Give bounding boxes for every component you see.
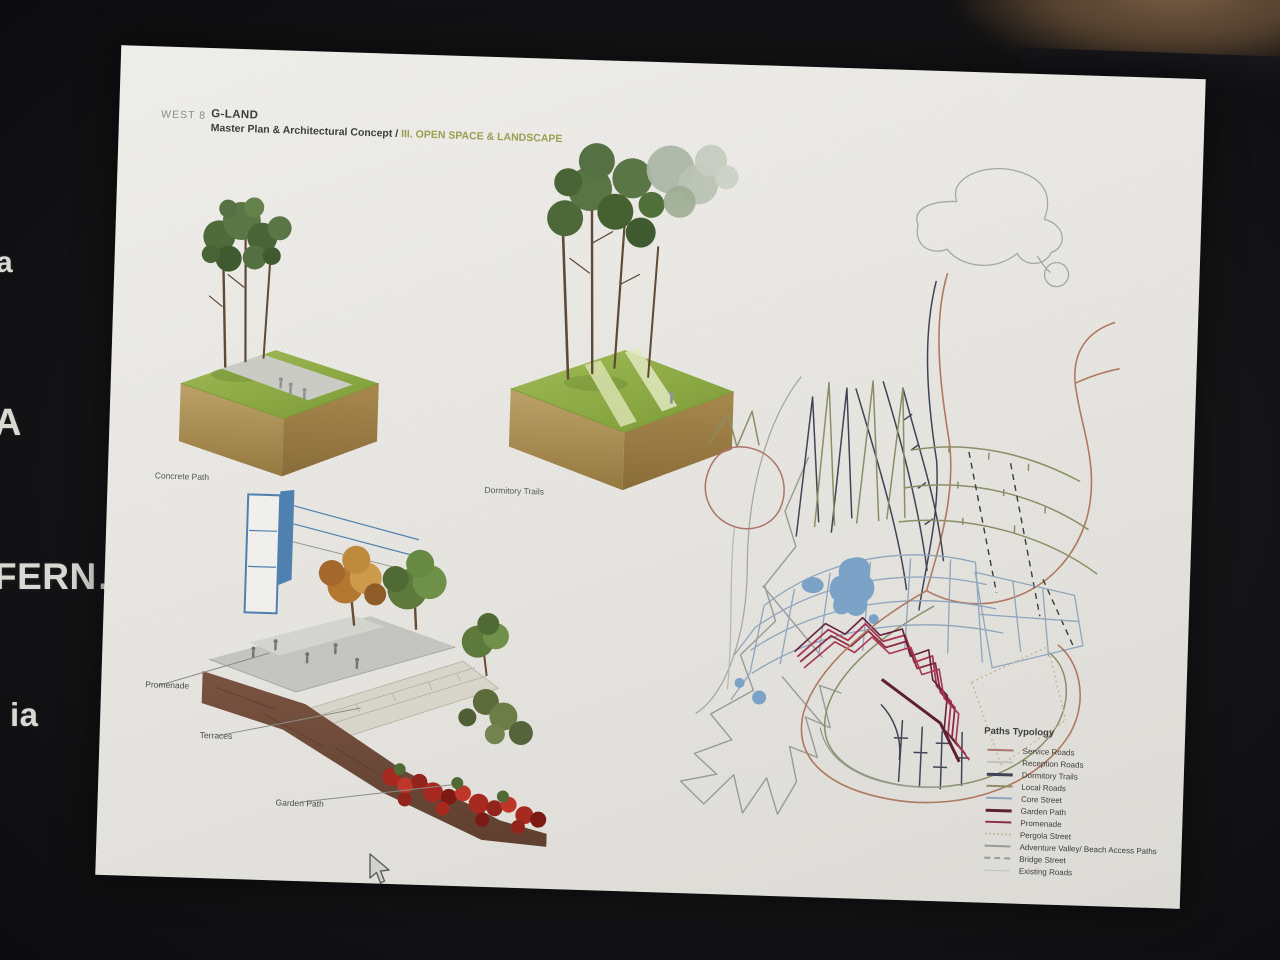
- paths-typology-legend: Paths Typology Service Roads Reception R…: [980, 726, 1190, 882]
- subtitle-prefix: Master Plan & Architectural Concept /: [211, 122, 402, 140]
- studio-name: WEST 8: [161, 108, 206, 121]
- green-tree: [381, 549, 447, 631]
- presentation-slide-page: WEST 8 G-LAND Master Plan & Architectura…: [95, 45, 1206, 909]
- legend-line-swatch: [986, 797, 1012, 800]
- photographed-monitor-scene: a A FERN… ia WEST 8 G-LAND Master Plan &…: [0, 0, 1280, 960]
- paths-typology-map: [637, 112, 1129, 826]
- legend-items: Service Roads Reception Roads Dormitory …: [980, 744, 1189, 882]
- legend-item-label: Bridge Street: [1019, 854, 1066, 864]
- legend-line-swatch: [986, 785, 1012, 788]
- background-text-fragment: A: [0, 402, 22, 445]
- soil-block: [178, 347, 380, 479]
- legend-item-label: Pergola Street: [1020, 830, 1071, 841]
- legend-item-label: Existing Roads: [1019, 866, 1073, 877]
- background-text-fragment: a: [0, 246, 13, 280]
- legend-line-swatch: [985, 833, 1011, 836]
- orange-tree: [317, 545, 387, 627]
- legend-item-label: Core Street: [1021, 794, 1062, 804]
- legend-line-swatch: [985, 821, 1011, 824]
- section-label-terraces: Terraces: [200, 730, 233, 741]
- legend-item-label: Service Roads: [1022, 746, 1074, 757]
- reception-loop: [704, 446, 785, 530]
- legend-item-label: Garden Path: [1021, 806, 1067, 816]
- section-label-promenade: Promenade: [145, 679, 189, 690]
- legend-line-swatch: [984, 857, 1010, 860]
- background-text-fragment: ia: [10, 696, 39, 734]
- bridge-street-lines: [963, 452, 1079, 645]
- garden-path-bundle: [791, 616, 973, 763]
- project-title: G-LAND: [211, 108, 258, 121]
- legend-line-swatch: [984, 869, 1010, 871]
- legend-line-swatch: [985, 845, 1011, 848]
- mouse-cursor: [368, 853, 394, 887]
- core-street-grid: [731, 549, 1086, 710]
- legend-line-swatch: [988, 749, 1014, 752]
- legend-item-label: Promenade: [1020, 818, 1062, 828]
- legend-line-swatch: [987, 772, 1013, 776]
- section-label-garden-path: Garden Path: [275, 797, 323, 809]
- concrete-path-figure: [160, 195, 399, 482]
- legend-line-swatch: [987, 761, 1013, 764]
- legend-item-label: Dormitory Trails: [1022, 770, 1078, 781]
- terraces-section-figure: [152, 480, 558, 847]
- legend-item-label: Reception Roads: [1022, 758, 1084, 769]
- pine-trees: [198, 196, 292, 369]
- legend-title: Paths Typology: [984, 726, 1189, 743]
- legend-item-label: Local Roads: [1021, 782, 1066, 792]
- existing-terrain-outline: [696, 160, 1072, 725]
- legend-line-swatch: [986, 808, 1012, 812]
